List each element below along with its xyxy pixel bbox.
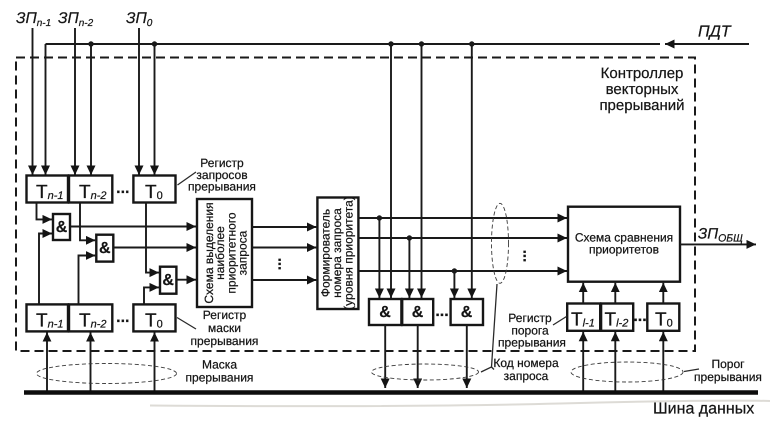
svg-text:Шина данных: Шина данных (653, 401, 754, 418)
svg-text:&: & (99, 240, 111, 257)
svg-text:Регистр: Регистр (203, 308, 247, 322)
svg-text:Маска: Маска (202, 358, 237, 372)
svg-text:...: ... (116, 309, 129, 326)
svg-text:запроса: запроса (236, 230, 250, 275)
svg-text:прерывания: прерывания (191, 334, 259, 348)
svg-text:векторных: векторных (606, 81, 679, 98)
svg-text:&: & (56, 219, 68, 236)
svg-text:...: ... (520, 250, 537, 263)
svg-text:...: ... (633, 308, 646, 325)
svg-text:&: & (412, 304, 424, 321)
svg-text:запроса: запроса (504, 369, 549, 383)
svg-text:приоритетов: приоритетов (589, 243, 659, 257)
svg-text:ПДТ: ПДТ (698, 24, 732, 41)
svg-text:&: & (162, 272, 174, 289)
svg-text:(уровня приоритета): (уровня приоритета) (341, 196, 355, 310)
svg-text:...: ... (275, 258, 292, 271)
svg-text:...: ... (116, 180, 129, 197)
svg-text:Порог: Порог (711, 357, 745, 371)
svg-text:прерывания: прерывания (188, 180, 256, 194)
svg-text:...: ... (435, 303, 448, 320)
svg-text:&: & (379, 304, 391, 321)
svg-text:прерывания: прерывания (186, 371, 254, 385)
svg-text:Контроллер: Контроллер (601, 65, 684, 82)
svg-text:Код номера: Код номера (493, 356, 559, 370)
svg-text:прерывания: прерывания (694, 370, 762, 384)
svg-text:прерывания: прерывания (498, 336, 566, 350)
svg-text:прерываний: прерываний (599, 97, 684, 114)
svg-text:маски: маски (208, 321, 241, 335)
svg-text:&: & (461, 304, 473, 321)
